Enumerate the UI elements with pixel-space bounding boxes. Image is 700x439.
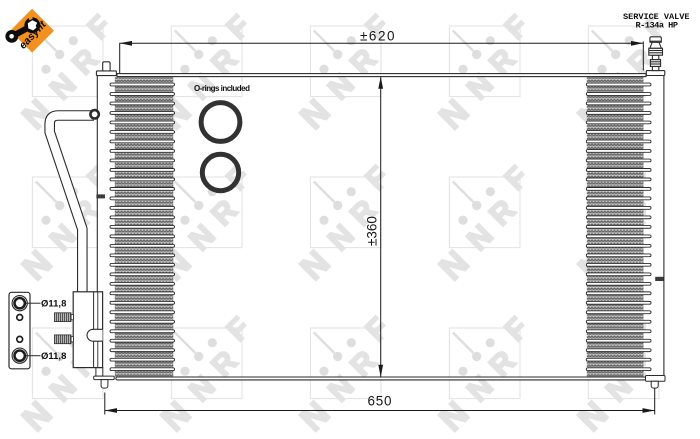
svg-text:±360: ±360 — [364, 216, 379, 246]
svg-text:650: 650 — [368, 394, 392, 409]
svg-text:Ø11,8: Ø11,8 — [41, 351, 66, 362]
svg-text:O-rings included: O-rings included — [194, 84, 250, 93]
svg-text:Ø11,8: Ø11,8 — [41, 299, 66, 310]
svg-text:R-134a HP: R-134a HP — [636, 21, 679, 31]
svg-text:±620: ±620 — [360, 29, 395, 44]
